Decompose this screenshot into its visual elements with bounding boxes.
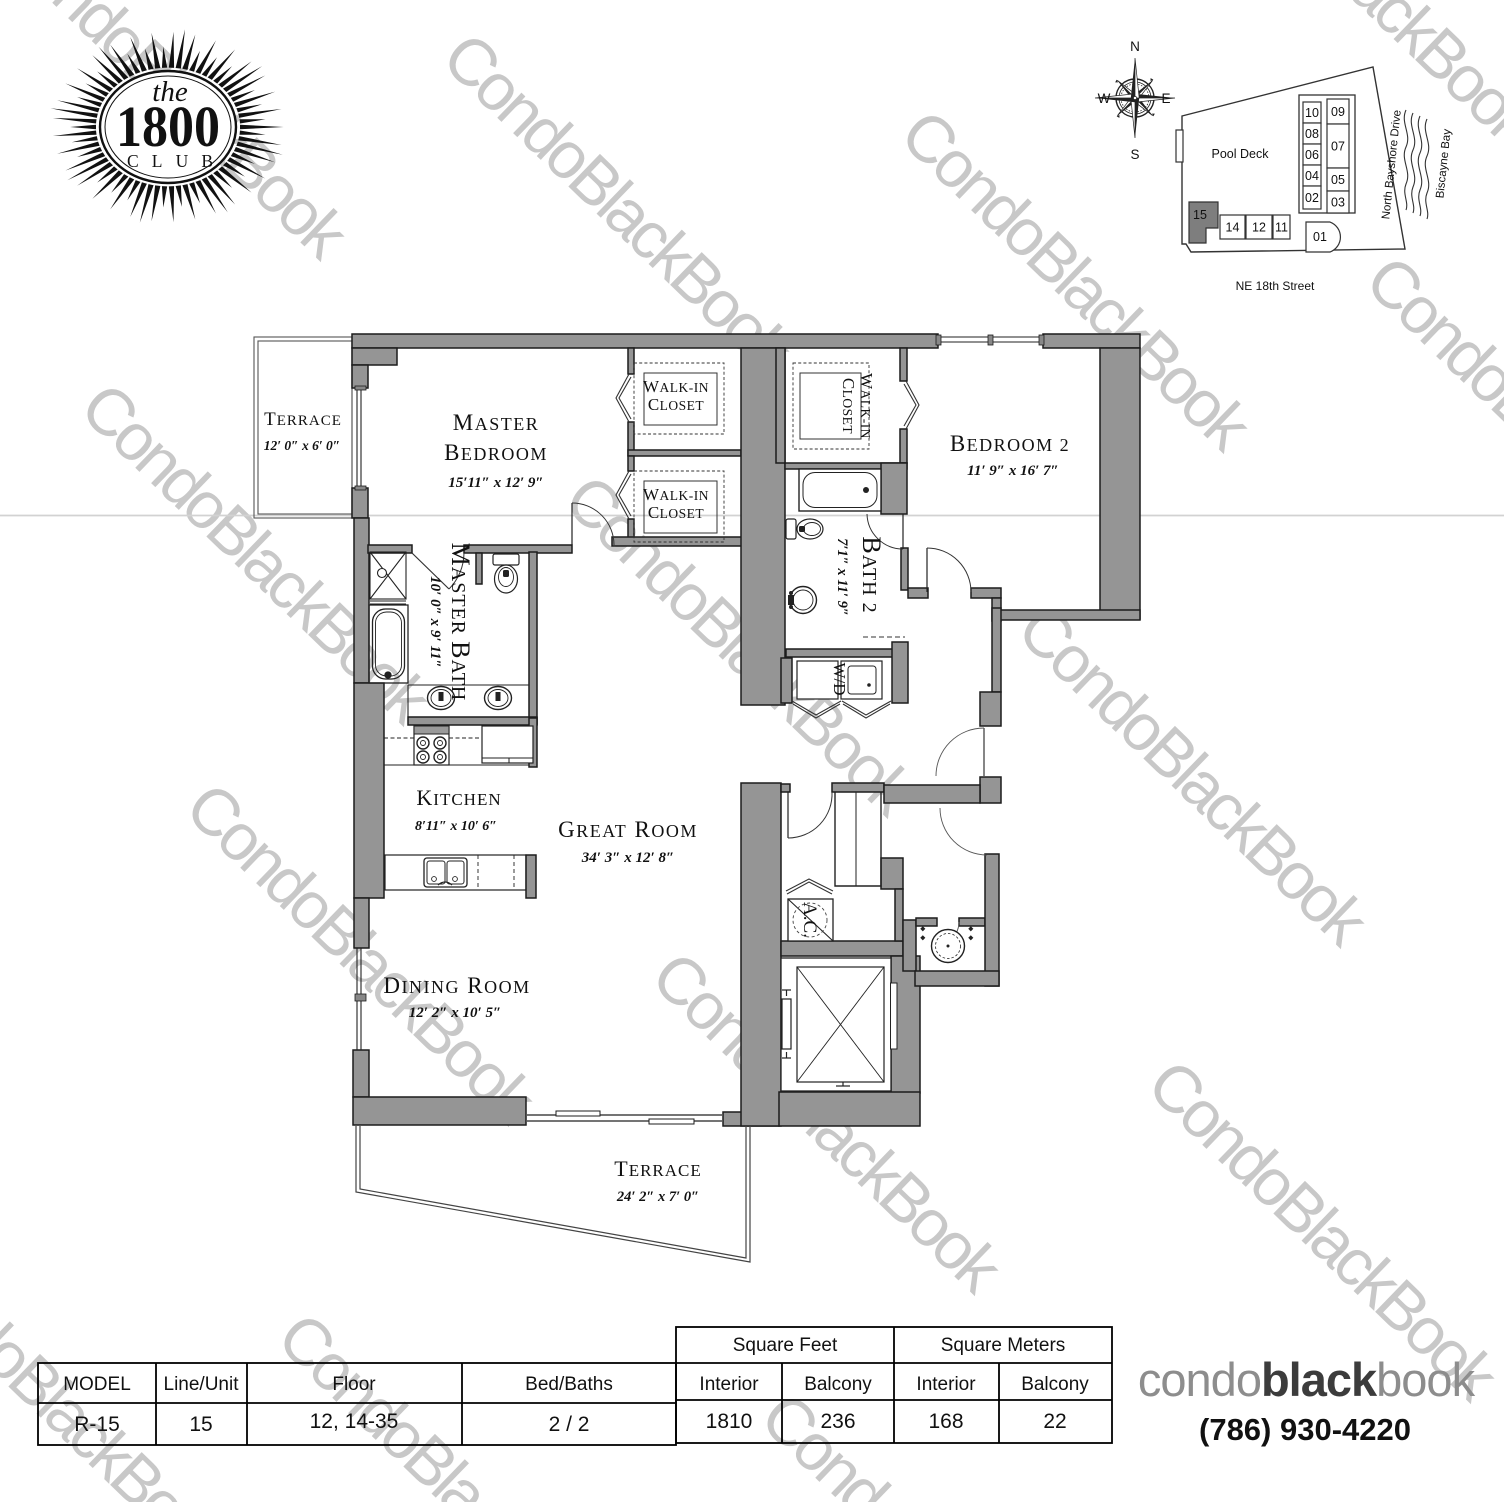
svg-text:CLOSET: CLOSET <box>839 378 858 435</box>
svg-text:NE 18th Street: NE 18th Street <box>1236 279 1315 293</box>
svg-text:03: 03 <box>1331 196 1345 210</box>
svg-text:22: 22 <box>1043 1410 1066 1433</box>
svg-text:Floor: Floor <box>332 1374 376 1395</box>
svg-text:Interior: Interior <box>699 1374 759 1395</box>
svg-text:Square Meters: Square Meters <box>941 1335 1066 1356</box>
svg-text:12: 12 <box>1252 221 1266 235</box>
svg-text:06: 06 <box>1305 148 1319 162</box>
svg-text:WALK-IN: WALK-IN <box>857 373 876 439</box>
svg-text:04: 04 <box>1305 169 1319 183</box>
svg-text:R-15: R-15 <box>74 1413 120 1436</box>
svg-text:Line/Unit: Line/Unit <box>164 1374 240 1395</box>
svg-text:8′11″ x 10′ 6″: 8′11″ x 10′ 6″ <box>415 819 497 834</box>
svg-text:168: 168 <box>928 1410 963 1433</box>
svg-text:Biscayne Bay: Biscayne Bay <box>1434 128 1453 199</box>
svg-text:N: N <box>1130 39 1140 54</box>
svg-text:09: 09 <box>1331 105 1345 119</box>
svg-text:15: 15 <box>1193 208 1207 222</box>
svg-text:Bed/Baths: Bed/Baths <box>525 1374 613 1395</box>
svg-text:12, 14-35: 12, 14-35 <box>310 1410 399 1433</box>
svg-text:Interior: Interior <box>916 1374 976 1395</box>
svg-text:S: S <box>1130 147 1139 162</box>
svg-text:01: 01 <box>1313 230 1327 244</box>
svg-text:CondoBlackBook: CondoBlackBook <box>1352 241 1504 611</box>
svg-text:MASTER: MASTER <box>453 410 539 435</box>
svg-text:Square Feet: Square Feet <box>733 1335 838 1356</box>
svg-text:(786) 930-4220: (786) 930-4220 <box>1199 1412 1411 1447</box>
svg-text:BEDROOM 2: BEDROOM 2 <box>950 431 1070 456</box>
svg-text:MODEL: MODEL <box>63 1374 131 1395</box>
svg-text:TERRACE: TERRACE <box>264 409 342 430</box>
svg-text:MASTER BATH: MASTER BATH <box>446 543 475 702</box>
svg-text:E: E <box>1161 91 1170 106</box>
svg-text:2 / 2: 2 / 2 <box>549 1413 590 1436</box>
svg-text:CondoBlackBook: CondoBlackBook <box>1004 590 1383 960</box>
svg-text:CondoBlackBook: CondoBlackBook <box>429 18 808 388</box>
svg-text:Balcony: Balcony <box>804 1374 872 1395</box>
svg-text:08: 08 <box>1305 127 1319 141</box>
svg-text:1810: 1810 <box>706 1410 753 1433</box>
svg-text:CondoBlackBook: CondoBlackBook <box>0 1218 248 1502</box>
svg-text:02: 02 <box>1305 191 1319 205</box>
svg-text:34′ 3″ x 12′ 8″: 34′ 3″ x 12′ 8″ <box>581 850 675 866</box>
svg-text:DINING ROOM: DINING ROOM <box>383 973 530 998</box>
svg-text:W: W <box>1098 91 1111 106</box>
svg-text:1800: 1800 <box>116 94 220 159</box>
svg-text:WALK-IN: WALK-IN <box>643 377 709 396</box>
svg-text:12′ 2″ x 10′ 5″: 12′ 2″ x 10′ 5″ <box>409 1005 502 1021</box>
svg-text:24′ 2″ x 7′ 0″: 24′ 2″ x 7′ 0″ <box>616 1189 699 1205</box>
svg-text:10′ 0″ x 9′ 11″: 10′ 0″ x 9′ 11″ <box>427 576 443 668</box>
svg-text:BATH 2: BATH 2 <box>857 536 886 613</box>
svg-text:12′ 0″ x 6′ 0″: 12′ 0″ x 6′ 0″ <box>264 438 341 453</box>
svg-text:BEDROOM: BEDROOM <box>444 440 548 465</box>
svg-text:Balcony: Balcony <box>1021 1374 1089 1395</box>
svg-text:GREAT ROOM: GREAT ROOM <box>558 817 698 842</box>
svg-text:CondoBlackBook: CondoBlackBook <box>264 1298 643 1502</box>
svg-text:11′ 9″ x 16′ 7″: 11′ 9″ x 16′ 7″ <box>967 463 1059 479</box>
svg-text:7′1″ x 11′ 9″: 7′1″ x 11′ 9″ <box>834 538 850 616</box>
svg-text:KITCHEN: KITCHEN <box>416 785 501 810</box>
svg-text:07: 07 <box>1331 140 1345 154</box>
svg-text:05: 05 <box>1331 173 1345 187</box>
svg-text:CLOSET: CLOSET <box>648 395 705 414</box>
svg-text:11: 11 <box>1275 221 1288 235</box>
svg-text:15: 15 <box>189 1413 212 1436</box>
svg-text:TERRACE: TERRACE <box>614 1156 702 1181</box>
svg-text:A.C.: A.C. <box>799 902 820 938</box>
svg-text:Pool Deck: Pool Deck <box>1212 147 1270 161</box>
svg-text:15′11″ x 12′ 9″: 15′11″ x 12′ 9″ <box>448 475 543 491</box>
svg-text:W/D: W/D <box>830 662 849 695</box>
svg-text:WALK-IN: WALK-IN <box>643 485 709 504</box>
svg-text:10: 10 <box>1305 106 1319 120</box>
svg-text:CondoBlackBook: CondoBlackBook <box>747 1378 1126 1502</box>
svg-text:CLOSET: CLOSET <box>648 503 705 522</box>
svg-text:condoblackbook: condoblackbook <box>1138 1353 1476 1406</box>
svg-text:236: 236 <box>820 1410 855 1433</box>
svg-text:14: 14 <box>1226 221 1240 235</box>
